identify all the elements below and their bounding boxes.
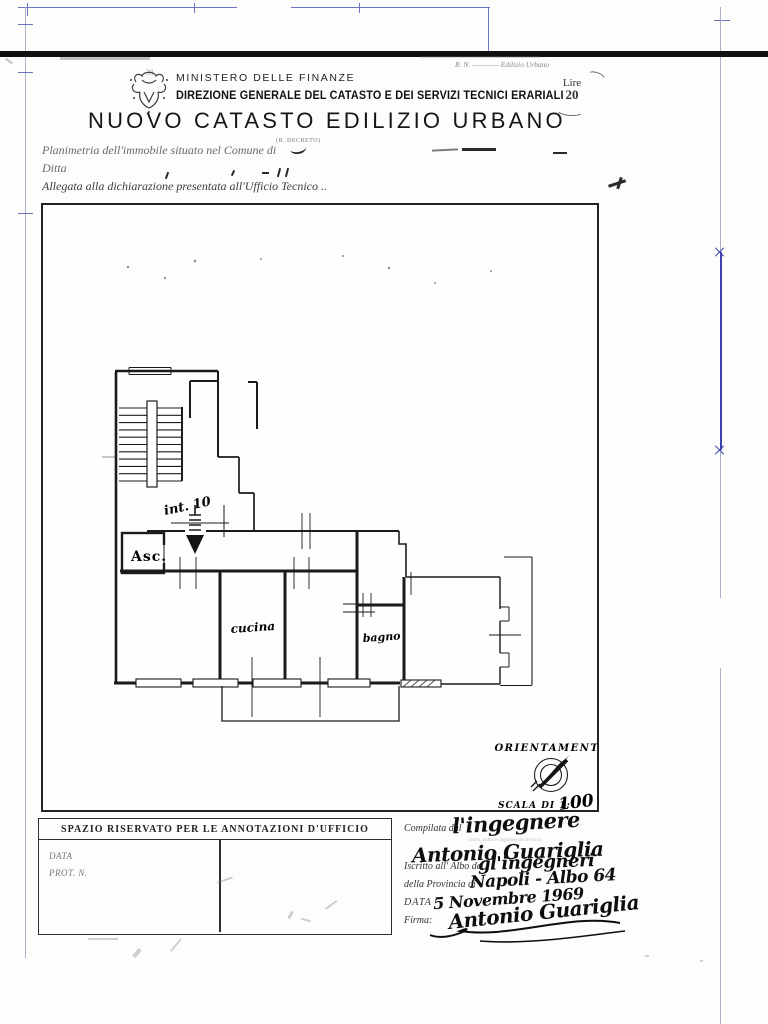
- scan-smudge-2: [420, 56, 540, 58]
- balcony-outline: [222, 686, 399, 721]
- blue-tick-7: [18, 72, 33, 73]
- office-data-label: DATA: [49, 851, 73, 861]
- blue-tick-8: [18, 213, 33, 214]
- office-box-divider: [219, 839, 221, 932]
- blue-guide-right-a: [720, 7, 721, 252]
- province-label: della Provincia di: [404, 879, 476, 890]
- register-label: Iscritto all' Albo de: [404, 861, 481, 872]
- pencil-specks: [127, 255, 492, 284]
- document-title: NUOVO CATASTO EDILIZIO URBANO: [88, 108, 566, 134]
- blue-tick-4: [488, 7, 489, 57]
- signature-flourish: [420, 905, 640, 945]
- pencil-scribble-3: [325, 900, 338, 910]
- pen-dash-1: [432, 148, 458, 151]
- pencil-scribble-5: [88, 938, 118, 940]
- blue-guide-left: [25, 7, 26, 958]
- scan-smudge-1: [60, 57, 150, 60]
- pen-tick-2: [231, 170, 235, 176]
- pen-tick-5: [285, 168, 289, 177]
- blue-tick-1: [27, 3, 28, 16]
- blue-guide-top-right: [291, 7, 490, 8]
- compass-needle-shaft: [540, 760, 567, 787]
- pencil-scribble-6: [132, 948, 141, 958]
- blue-tick-3: [359, 3, 360, 13]
- floor-plan-drawing: int. 10 Asc.: [43, 205, 597, 810]
- elevator-label: Asc.: [130, 549, 167, 565]
- pencil-scribble-4: [301, 918, 311, 923]
- blue-cross-mark-1: [714, 246, 726, 258]
- lire-stamp-value: 20: [566, 87, 579, 102]
- blue-guide-right-b: [720, 252, 722, 450]
- compiled-by-handwriting: l'ingegnere: [451, 807, 580, 839]
- form-line-3: Allegata alla dichiarazione presentata a…: [42, 179, 327, 194]
- speck-1: [645, 955, 649, 957]
- pen-tick-3: [262, 172, 269, 174]
- blue-tick-5: [714, 20, 730, 21]
- blue-guide-right-c: [720, 450, 721, 598]
- pen-tick-4: [277, 168, 281, 177]
- unit-label: int. 10: [163, 494, 213, 519]
- office-prot-label: PROT. N.: [49, 868, 88, 878]
- scanned-cadastral-document: B. N. ———— Edilizio Urbano 31 MINISTERO …: [0, 0, 768, 1024]
- form-line-1: Planimetria dell'immobile situato nel Co…: [42, 143, 276, 158]
- stair-stringer: [147, 401, 157, 487]
- right-room-window-sills: [500, 607, 509, 667]
- blue-tick-6: [18, 24, 33, 25]
- kitchen-label: cucina: [230, 619, 275, 636]
- form-line-2: Ditta: [42, 161, 67, 176]
- blue-cross-mark-2: [714, 444, 726, 456]
- speck-2: [700, 960, 703, 962]
- floor-plan-frame: int. 10 Asc.: [41, 203, 599, 812]
- ministry-line: MINISTERO DELLE FINANZE: [176, 72, 355, 84]
- pen-dash-3: [553, 152, 567, 154]
- compass-tail: [531, 781, 540, 791]
- directorate-line: DIREZIONE GENERALE DEL CATASTO E DEI SER…: [176, 90, 564, 102]
- right-room-walls: [406, 577, 500, 684]
- pencil-scribble-2: [287, 911, 294, 919]
- orientation-block: ORIENTAMENTO SCALA DI 1: 100: [494, 743, 597, 810]
- lire-stamp: Lire 20: [552, 78, 592, 102]
- blue-tick-2: [194, 3, 195, 13]
- orientation-title: ORIENTAMENTO: [494, 743, 597, 754]
- corner-note: B. N. ———— Edilizio Urbano: [455, 60, 549, 69]
- office-box-title: SPAZIO RISERVATO PER LE ANNOTAZIONI D'UF…: [39, 819, 391, 840]
- blue-guide-top-left: [18, 7, 237, 8]
- pen-mark-corner: [5, 58, 13, 64]
- blue-guide-right-d: [720, 668, 721, 1024]
- pen-squiggle-comune: [289, 142, 307, 156]
- office-annotations-box: SPAZIO RISERVATO PER LE ANNOTAZIONI D'UF…: [38, 818, 392, 935]
- bath-label: bagno: [362, 629, 401, 645]
- pen-dash-2: [462, 148, 496, 151]
- pencil-scribble-7: [170, 938, 182, 952]
